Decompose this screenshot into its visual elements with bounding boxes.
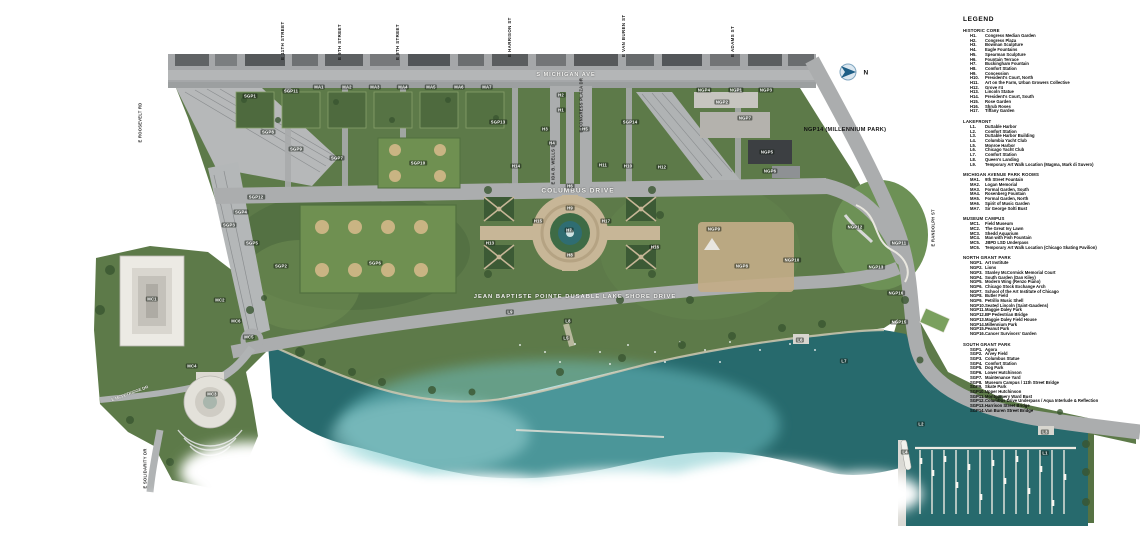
legend-item: NGP16.Cancer Survivors' Garden — [963, 332, 1137, 337]
legend-item-name: Van Buren Street Bridge — [985, 409, 1137, 414]
chicago-yacht-club-building — [793, 334, 809, 344]
grant-park-framework-map: E 11TH STREETE 9TH STREETE 8TH STREETE H… — [0, 0, 1140, 538]
legend-item-code: MA7. — [970, 207, 985, 212]
michigan-avenue-band — [168, 54, 816, 88]
field-museum-building — [120, 256, 184, 346]
legend-item-code: MC6. — [970, 246, 985, 251]
dusable-harbor-building — [1038, 426, 1054, 435]
compass-north-icon — [840, 64, 856, 80]
legend-section: SOUTH GRANT PARKSGP1.AgoraSGP2.Arvey Fie… — [963, 342, 1137, 414]
legend-item-name: Tiffany Garden — [985, 109, 1137, 114]
legend-panel: LEGEND HISTORIC COREH1.Congress Median G… — [963, 16, 1137, 414]
congress-boulevard — [550, 86, 592, 190]
legend-section: MUSEUM CAMPUSMC1.Field MuseumMC2.The Gre… — [963, 216, 1137, 250]
lower-hutchinson-field — [300, 205, 456, 293]
legend-item-name: Temporary Art Walk Location (Magma, Mark… — [985, 163, 1137, 168]
legend-item: MC6.Temporary Art Walk Location (Chicago… — [963, 246, 1137, 251]
legend-title: LEGEND — [963, 16, 1137, 23]
legend-section: NORTH GRANT PARKNGP1.Art InstituteNGP2.L… — [963, 255, 1137, 336]
butler-field — [698, 222, 794, 292]
legend-section: HISTORIC COREH1.Congress Median GardenH2… — [963, 28, 1137, 114]
legend-item-code: NGP16. — [970, 332, 985, 337]
legend-item-code: SGP14. — [970, 409, 985, 414]
legend-item-name: Temporary Art Walk Location (Chicago Ska… — [985, 246, 1137, 251]
legend-item: H17.Tiffany Garden — [963, 109, 1137, 114]
legend-item-code: L9. — [970, 163, 985, 168]
peanut-park-court — [920, 308, 950, 332]
michigan-avenue-buildings — [175, 54, 814, 66]
legend-item: SGP14.Van Buren Street Bridge — [963, 409, 1137, 414]
legend-item: MA7.Sir George Solti Bust — [963, 207, 1137, 212]
legend-sections: HISTORIC COREH1.Congress Median GardenH2… — [963, 28, 1137, 414]
legend-section-heading: SOUTH GRANT PARK — [963, 342, 1137, 347]
legend-item-name: Sir George Solti Bust — [985, 207, 1137, 212]
legend-item-code: H17. — [970, 109, 985, 114]
legend-item-name: Cancer Survivors' Garden — [985, 332, 1137, 337]
legend-section: LAKEFRONTL1.DuSable HarborL2.Comfort Sta… — [963, 119, 1137, 167]
upper-hutchinson-field — [378, 138, 460, 188]
legend-item: L9.Temporary Art Walk Location (Magma, M… — [963, 163, 1137, 168]
legend-section: MICHIGAN AVENUE PARK ROOMSMA1.9th Street… — [963, 172, 1137, 211]
